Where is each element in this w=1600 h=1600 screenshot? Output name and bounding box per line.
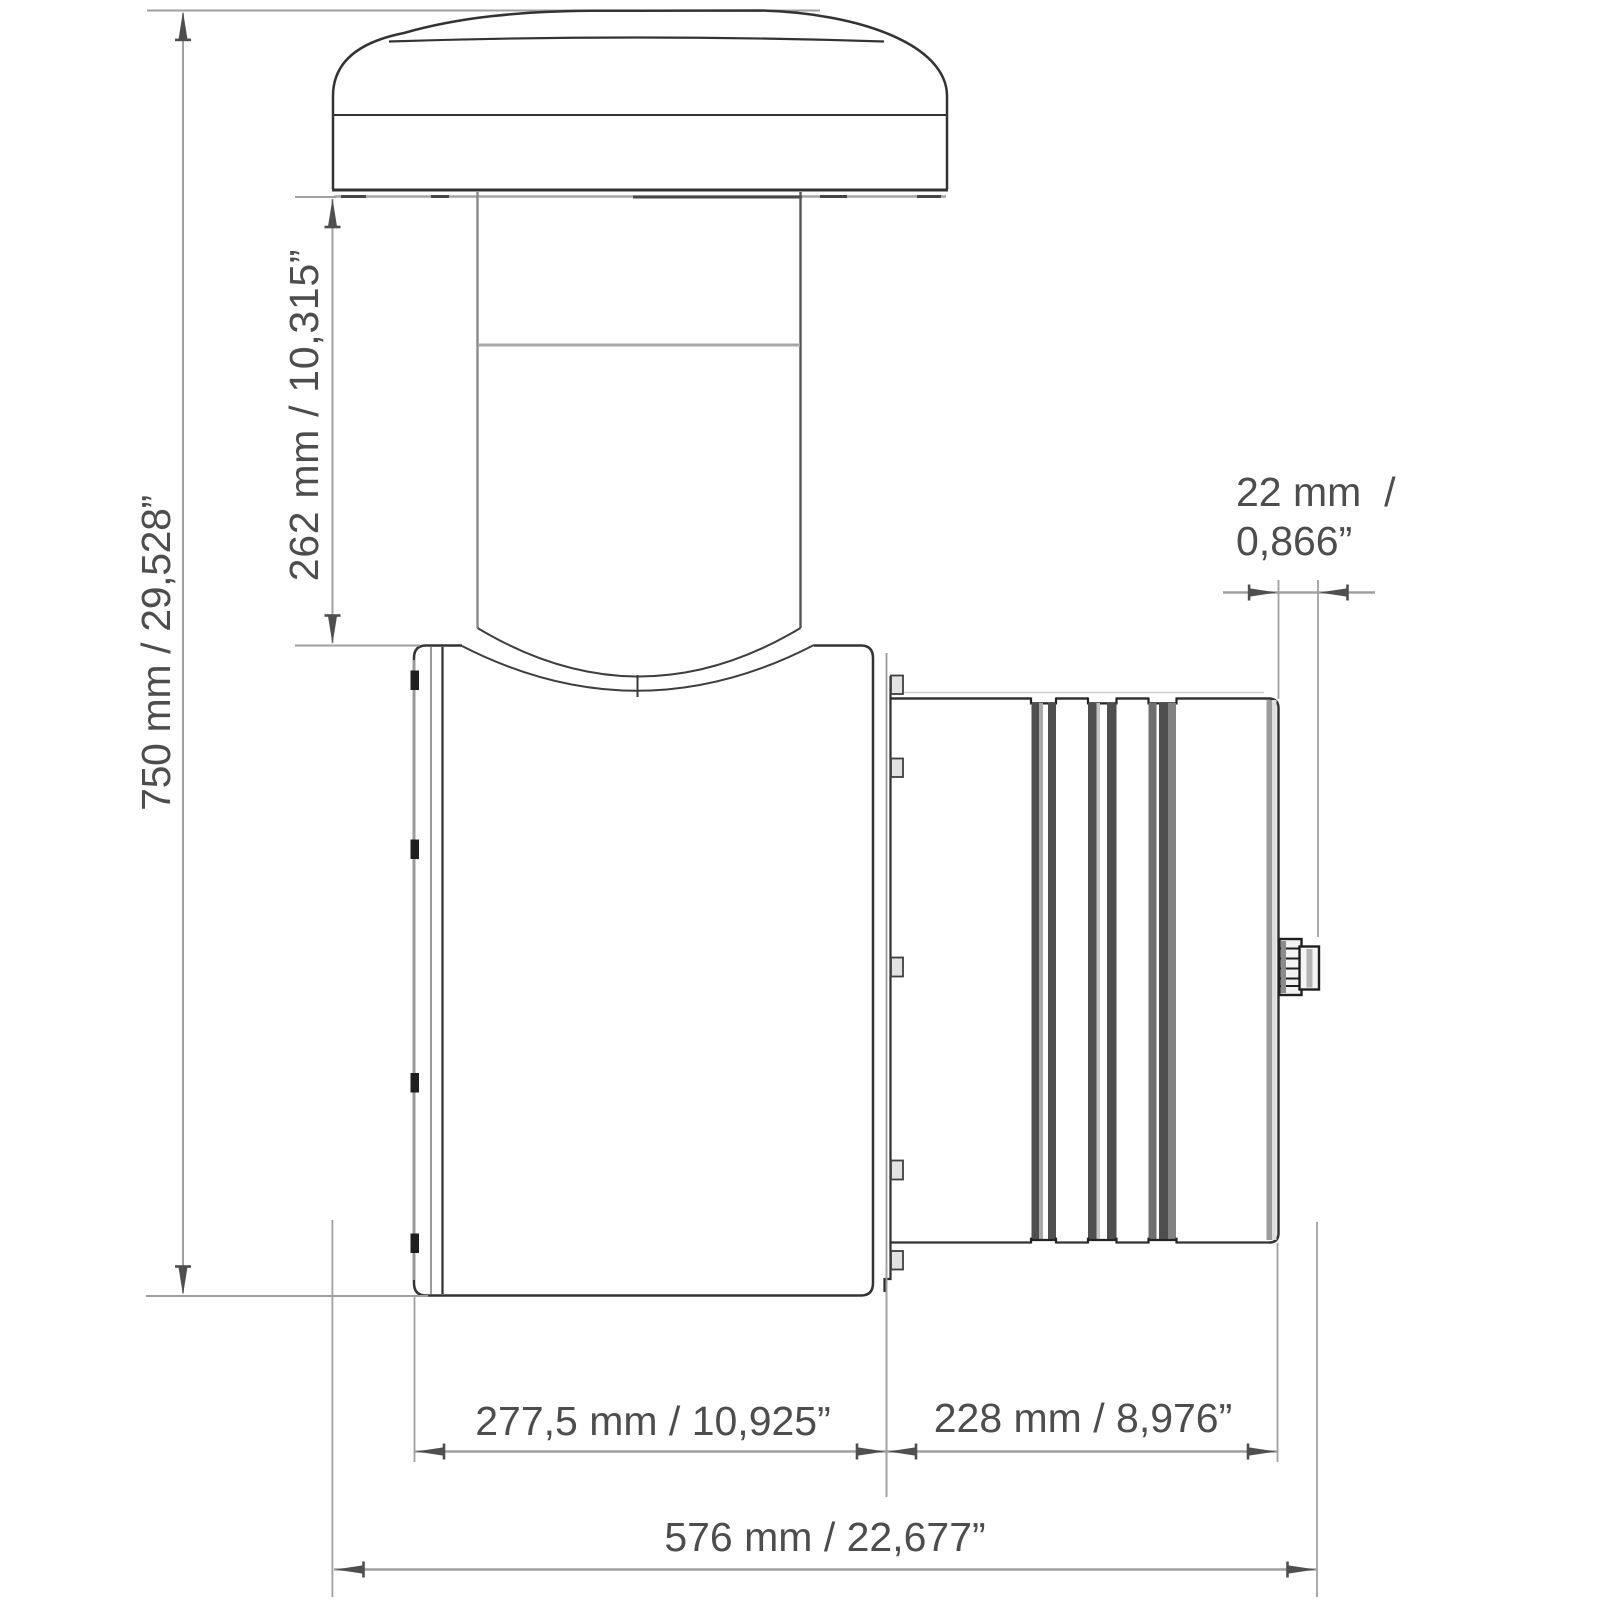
svg-text:277,5 mm / 10,925”: 277,5 mm / 10,925”: [475, 1398, 831, 1444]
svg-text:262 mm / 10,315”: 262 mm / 10,315”: [281, 249, 327, 582]
svg-text:576 mm / 22,677”: 576 mm / 22,677”: [664, 1514, 985, 1560]
svg-text:0,866”: 0,866”: [1236, 518, 1352, 564]
svg-text:750 mm / 29,528”: 750 mm / 29,528”: [133, 495, 179, 811]
svg-text:228 mm / 8,976”: 228 mm / 8,976”: [934, 1395, 1233, 1441]
svg-text:22 mm /: 22 mm /: [1236, 469, 1396, 515]
